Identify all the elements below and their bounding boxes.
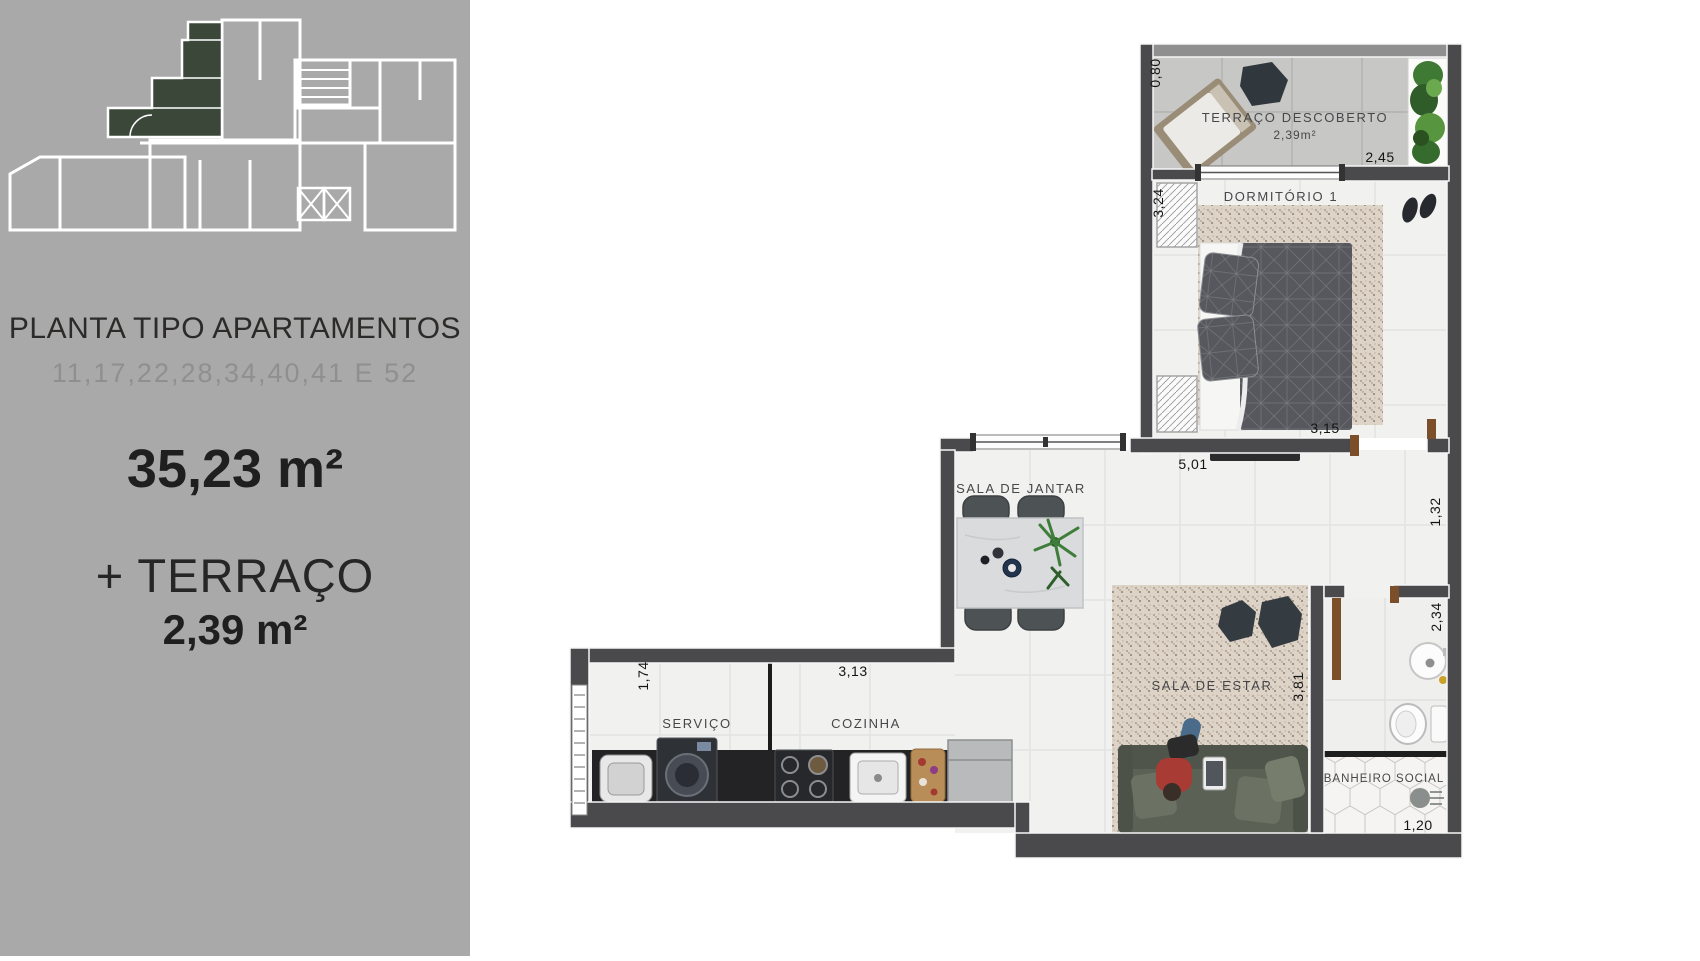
laundry-sink <box>600 755 652 802</box>
kitchen-sink <box>850 753 906 802</box>
key-plan <box>0 0 470 240</box>
dim-bedroom-width: 3,15 <box>1310 420 1339 436</box>
dim-living-side: 3,81 <box>1290 672 1306 701</box>
info-sidebar: PLANTA TIPO APARTAMENTOS 11,17,22,28,34,… <box>0 0 470 956</box>
terrace-label: TERRAÇO DESCOBERTO <box>1202 110 1389 125</box>
toilet <box>1390 704 1447 744</box>
main-area-value: 35,23 m² <box>0 438 470 500</box>
dim-bedroom-side: 3,24 <box>1150 188 1166 217</box>
dim-living-width: 5,01 <box>1178 456 1207 472</box>
kitchen-label: COZINHA <box>831 716 901 731</box>
dim-bath-side: 2,34 <box>1428 602 1444 631</box>
washing-machine <box>657 738 717 804</box>
dim-laundry-depth: 1,74 <box>635 661 651 690</box>
floorplan-canvas: TERRAÇO DESCOBERTO 2,39m² DORMITÓRIO 1 S… <box>470 0 1700 956</box>
dim-terrace-width: 2,45 <box>1365 149 1394 165</box>
stove <box>775 750 833 802</box>
laundry-louver-window <box>572 685 587 815</box>
floorplan-drawing: TERRAÇO DESCOBERTO 2,39m² DORMITÓRIO 1 S… <box>470 0 1700 956</box>
key-plan-outline <box>10 20 455 230</box>
laundry-label: SERVIÇO <box>662 716 731 731</box>
bedroom-door-jamb <box>1350 435 1359 456</box>
bedroom-label: DORMITÓRIO 1 <box>1224 189 1339 204</box>
table-bowl <box>993 548 1004 559</box>
shower-partition <box>1324 751 1447 757</box>
dim-kitchen-width: 3,13 <box>838 663 867 679</box>
terrace-area-label: 2,39m² <box>1273 128 1316 142</box>
tablet <box>1203 757 1226 790</box>
plan-title: PLANTA TIPO APARTAMENTOS <box>0 312 470 346</box>
bathroom-label: BANHEIRO SOCIAL <box>1324 773 1444 785</box>
dining-window <box>970 433 1126 451</box>
dim-terrace-depth: 0,80 <box>1147 58 1163 87</box>
living-label: SALA DE ESTAR <box>1152 678 1273 693</box>
bed <box>1197 243 1352 430</box>
pillow <box>1199 252 1260 318</box>
terrace-plus-label: + TERRAÇO <box>0 548 470 603</box>
terrace-area-value: 2,39 m² <box>0 606 470 654</box>
bathroom-door-jamb <box>1390 586 1399 603</box>
bedroom-terrace-window <box>1195 164 1345 181</box>
bathroom-door-leaf <box>1332 598 1341 680</box>
dim-bath-width: 1,20 <box>1403 817 1432 833</box>
pillow <box>1197 314 1259 382</box>
key-plan-highlight-unit <box>108 22 222 137</box>
bedroom-door-leaf <box>1427 419 1436 439</box>
dining-set <box>957 496 1083 630</box>
fridge <box>948 740 1012 806</box>
cutting-board <box>911 749 945 802</box>
kitchen-divider <box>768 663 772 750</box>
plan-units: 11,17,22,28,34,40,41 E 52 <box>0 358 470 389</box>
dim-hall-side: 1,32 <box>1427 497 1443 526</box>
dining-label: SALA DE JANTAR <box>956 481 1086 496</box>
wardrobe <box>1157 376 1197 432</box>
